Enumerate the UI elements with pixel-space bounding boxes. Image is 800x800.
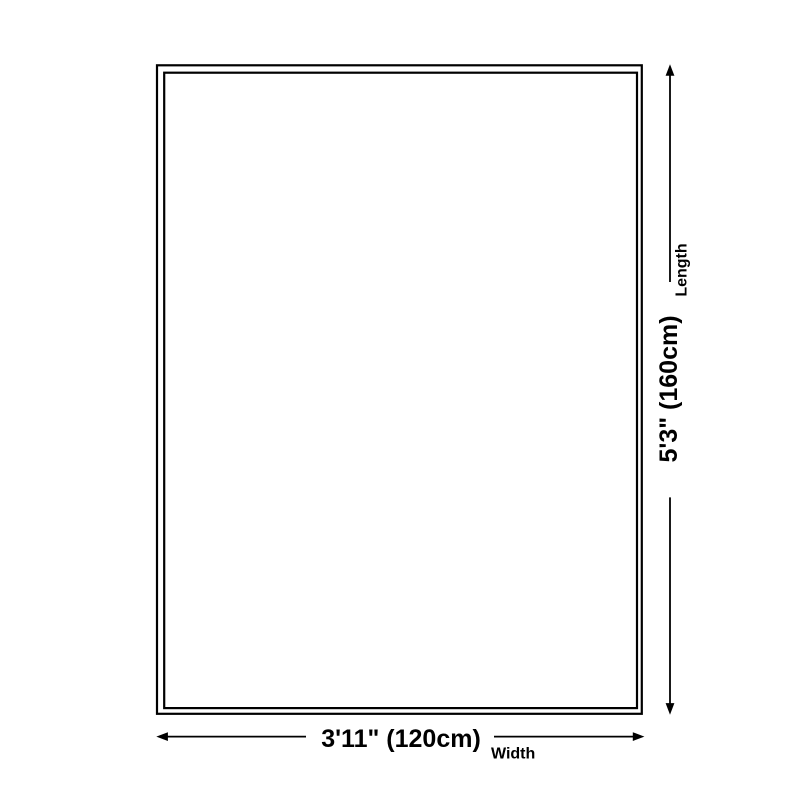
svg-text:5'3" (160cm): 5'3" (160cm) [655, 315, 683, 462]
svg-text:Width: Width [491, 746, 535, 763]
svg-text:3'11" (120cm): 3'11" (120cm) [321, 725, 481, 753]
svg-text:Length: Length [674, 243, 691, 296]
